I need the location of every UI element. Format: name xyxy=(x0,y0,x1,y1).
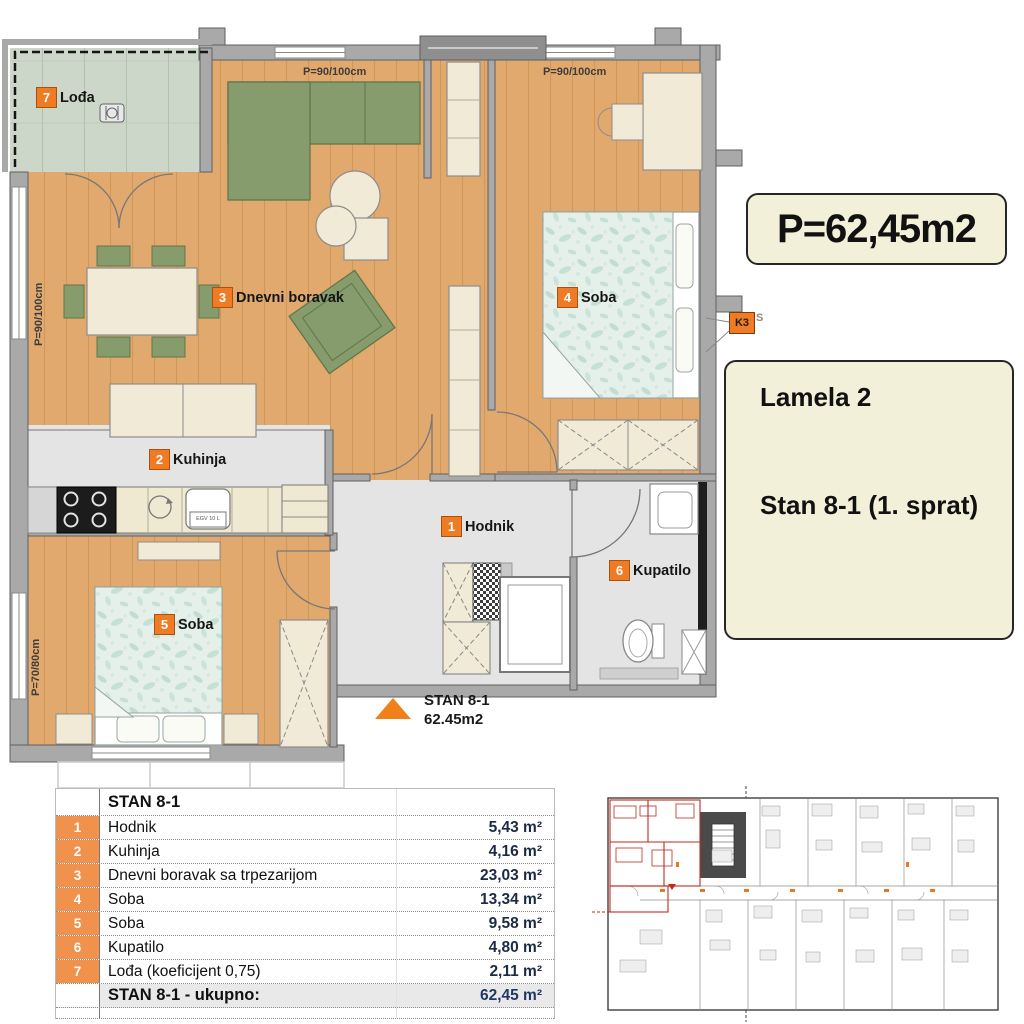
dark-wall-segment xyxy=(698,482,707,630)
row-area: 4,80 m² xyxy=(396,936,554,959)
room-label-soba4: 4 Soba xyxy=(557,287,616,308)
total-area: 62,45 m² xyxy=(396,984,554,1007)
room-number-chip: 4 xyxy=(557,287,578,308)
k3-marker: K3 S xyxy=(729,312,763,334)
room-number-chip: 7 xyxy=(36,87,57,108)
table-empty-row xyxy=(56,1008,554,1019)
table-header-area xyxy=(396,789,554,815)
table-row: 7 Lođa (koeficijent 0,75) 2,11 m² xyxy=(56,960,554,984)
terrace-outline xyxy=(58,762,344,788)
floorplan-sheet: 1 Hodnik 2 Kuhinja 3 Dnevni boravak 4 So… xyxy=(0,0,1024,1024)
room-label-kupatilo: 6 Kupatilo xyxy=(609,560,691,581)
building-overview-miniplan xyxy=(592,786,998,1022)
row-number: 3 xyxy=(56,864,100,887)
row-area: 2,11 m² xyxy=(396,960,554,983)
room-number-chip: 2 xyxy=(149,449,170,470)
k3-chip: K3 xyxy=(729,312,755,334)
row-number: 4 xyxy=(56,888,100,911)
row-number: 7 xyxy=(56,960,100,983)
total-label: STAN 8-1 - ukupno: xyxy=(100,986,396,1005)
room-number-chip: 5 xyxy=(154,614,175,635)
row-name: Hodnik xyxy=(100,819,396,837)
room-number-chip: 6 xyxy=(609,560,630,581)
total-area-text: P=62,45m2 xyxy=(777,207,976,252)
room-label-lodja: 7 Lođa xyxy=(36,87,95,108)
loggia-floor-drain-icon xyxy=(100,104,124,122)
row-area: 4,16 m² xyxy=(396,840,554,863)
row-number: 6 xyxy=(56,936,100,959)
window-dimension-label: P=70/80cm xyxy=(30,639,42,696)
table-row: 6 Kupatilo 4,80 m² xyxy=(56,936,554,960)
row-area: 5,43 m² xyxy=(396,816,554,839)
empty-cell xyxy=(396,1008,554,1018)
window-dimension-label: P=90/100cm xyxy=(33,283,45,346)
row-number: 5 xyxy=(56,912,100,935)
room-label-kuhinja: 2 Kuhinja xyxy=(149,449,226,470)
table-row: 5 Soba 9,58 m² xyxy=(56,912,554,936)
table-header-row: STAN 8-1 xyxy=(56,789,554,816)
row-name: Kuhinja xyxy=(100,843,396,861)
room-label-hodnik: 1 Hodnik xyxy=(441,516,514,537)
room-area-table: STAN 8-1 1 Hodnik 5,43 m² 2 Kuhinja 4,16… xyxy=(55,788,555,1019)
table-num-cell xyxy=(56,1008,100,1018)
row-name: Soba xyxy=(100,891,396,909)
row-area: 9,58 m² xyxy=(396,912,554,935)
table-row: 4 Soba 13,34 m² xyxy=(56,888,554,912)
table-row: 3 Dnevni boravak sa trpezarijom 23,03 m² xyxy=(56,864,554,888)
hallway-furniture xyxy=(443,563,570,674)
row-name: Soba xyxy=(100,915,396,933)
entrance-block xyxy=(420,36,546,60)
window-dimension-label: P=90/100cm xyxy=(303,66,366,78)
unit-info-box: Lamela 2 Stan 8-1 (1. sprat) xyxy=(724,360,1014,640)
room-label-dnevni-boravak: 3 Dnevni boravak xyxy=(212,287,344,308)
row-area: 13,34 m² xyxy=(396,888,554,911)
row-name: Lođa (koeficijent 0,75) xyxy=(100,963,396,981)
unit-name: Stan 8-1 (1. sprat) xyxy=(760,490,978,521)
apartment-pointer-area: 62.45m2 xyxy=(424,710,483,729)
table-total-row: STAN 8-1 - ukupno: 62,45 m² xyxy=(56,984,554,1008)
room-label-soba5: 5 Soba xyxy=(154,614,213,635)
table-num-cell xyxy=(56,984,100,1007)
boiler-label: EGV 10 L xyxy=(190,516,226,522)
table-header-title: STAN 8-1 xyxy=(100,793,396,812)
table-num-cell xyxy=(56,789,100,815)
row-name: Kupatilo xyxy=(100,939,396,957)
window-dimension-label: P=90/100cm xyxy=(543,66,606,78)
row-number: 2 xyxy=(56,840,100,863)
row-name: Dnevni boravak sa trpezarijom xyxy=(100,867,396,885)
row-area: 23,03 m² xyxy=(396,864,554,887)
apartment-pointer-title: STAN 8-1 xyxy=(424,691,490,710)
row-number: 1 xyxy=(56,816,100,839)
total-area-box: P=62,45m2 xyxy=(746,193,1007,265)
room-number-chip: 3 xyxy=(212,287,233,308)
pointer-triangle xyxy=(375,698,411,719)
building-name: Lamela 2 xyxy=(760,382,871,413)
table-row: 1 Hodnik 5,43 m² xyxy=(56,816,554,840)
table-row: 2 Kuhinja 4,16 m² xyxy=(56,840,554,864)
k3-side-text: S xyxy=(756,312,763,324)
room-number-chip: 1 xyxy=(441,516,462,537)
kitchen-furniture xyxy=(28,485,328,533)
